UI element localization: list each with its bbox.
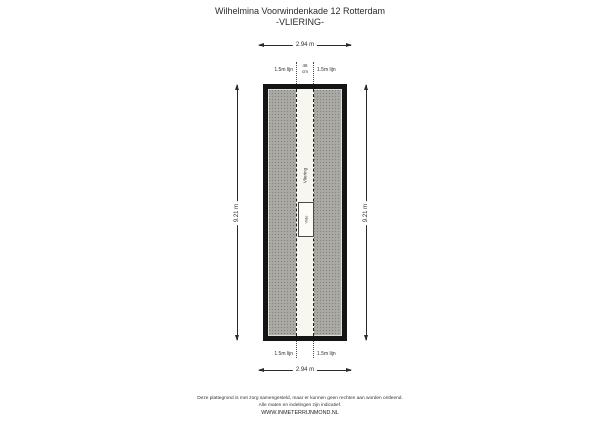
arrow-down-icon [364,335,368,341]
footer-disclaimer-line2: Alle maten en indelingen zijn indicatief… [0,403,600,408]
annotation-top-right-15m: 1.5m lijn [317,66,353,74]
page-title-address: Wilhelmina Voorwindenkade 12 Rotterdam [0,6,600,16]
vide-opening: Vide [298,202,314,237]
vide-label: Vide [303,216,308,224]
footer-disclaimer-line1: Deze plattegrond is met zorg samengestel… [0,396,600,401]
leader-line-bottom-left [296,341,297,358]
arrow-right-icon [346,43,352,47]
arrow-up-icon [235,84,239,90]
walkway-strip: Vliering Vide [296,89,314,336]
arrow-right-icon [346,368,352,372]
strip-width-unit: cm [297,69,313,75]
floorplan-page: Wilhelmina Voorwindenkade 12 Rotterdam -… [0,0,600,424]
leader-line-top-right [313,62,314,84]
dimension-top-width-label: 2.94 m [293,42,317,48]
dimension-right-height-label: 9.21 m [363,200,369,224]
footer-website: WWW.INMETERRIJNMOND.NL [0,410,600,416]
leader-line-bottom-right [313,341,314,358]
annotation-strip-width: 46 cm [297,63,313,74]
dimension-bottom-width-label: 2.94 m [293,367,317,373]
floorplan-outline: Vliering Vide [263,84,347,341]
arrow-down-icon [235,335,239,341]
annotation-top-left-15m: 1.5m lijn [257,66,293,74]
annotation-bottom-right-15m: 1.5m lijn [317,350,353,358]
arrow-left-icon [258,43,264,47]
arrow-left-icon [258,368,264,372]
arrow-up-icon [364,84,368,90]
annotation-bottom-left-15m: 1.5m lijn [257,350,293,358]
dimension-left-height-label: 9.21 m [234,200,240,224]
page-title-floor: -VLIERING- [0,17,600,27]
room-label: Vliering [303,161,308,191]
